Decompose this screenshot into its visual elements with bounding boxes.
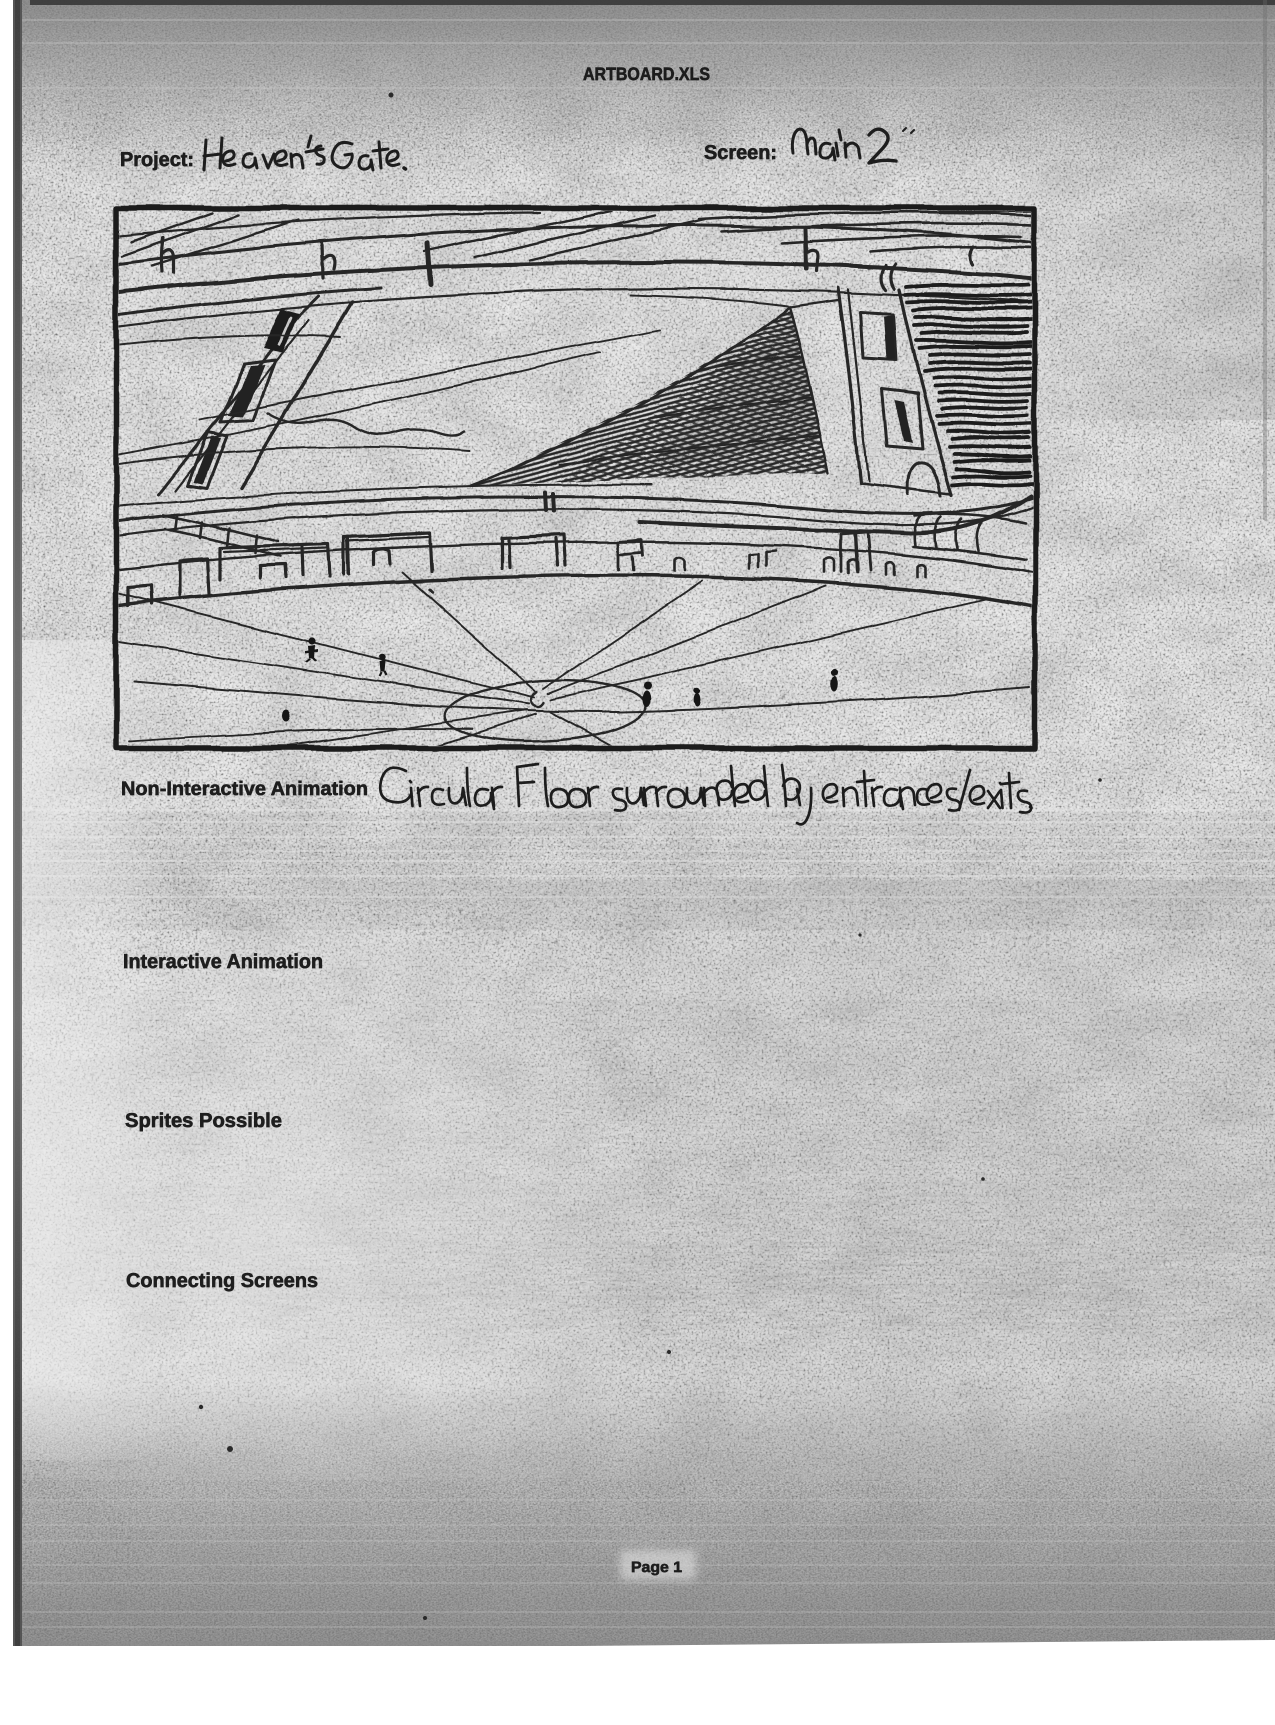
svg-text:Page 1: Page 1 xyxy=(631,1559,682,1576)
svg-text:Screen:: Screen: xyxy=(704,142,777,164)
svg-text:Connecting Screens: Connecting Screens xyxy=(126,1270,318,1292)
svg-text:Project:: Project: xyxy=(120,149,194,171)
svg-text:Interactive Animation: Interactive Animation xyxy=(123,951,323,973)
svg-text:Sprites Possible: Sprites Possible xyxy=(125,1110,282,1132)
svg-text:ARTBOARD.XLS: ARTBOARD.XLS xyxy=(583,64,710,84)
svg-text:Non-Interactive Animation: Non-Interactive Animation xyxy=(121,778,368,800)
